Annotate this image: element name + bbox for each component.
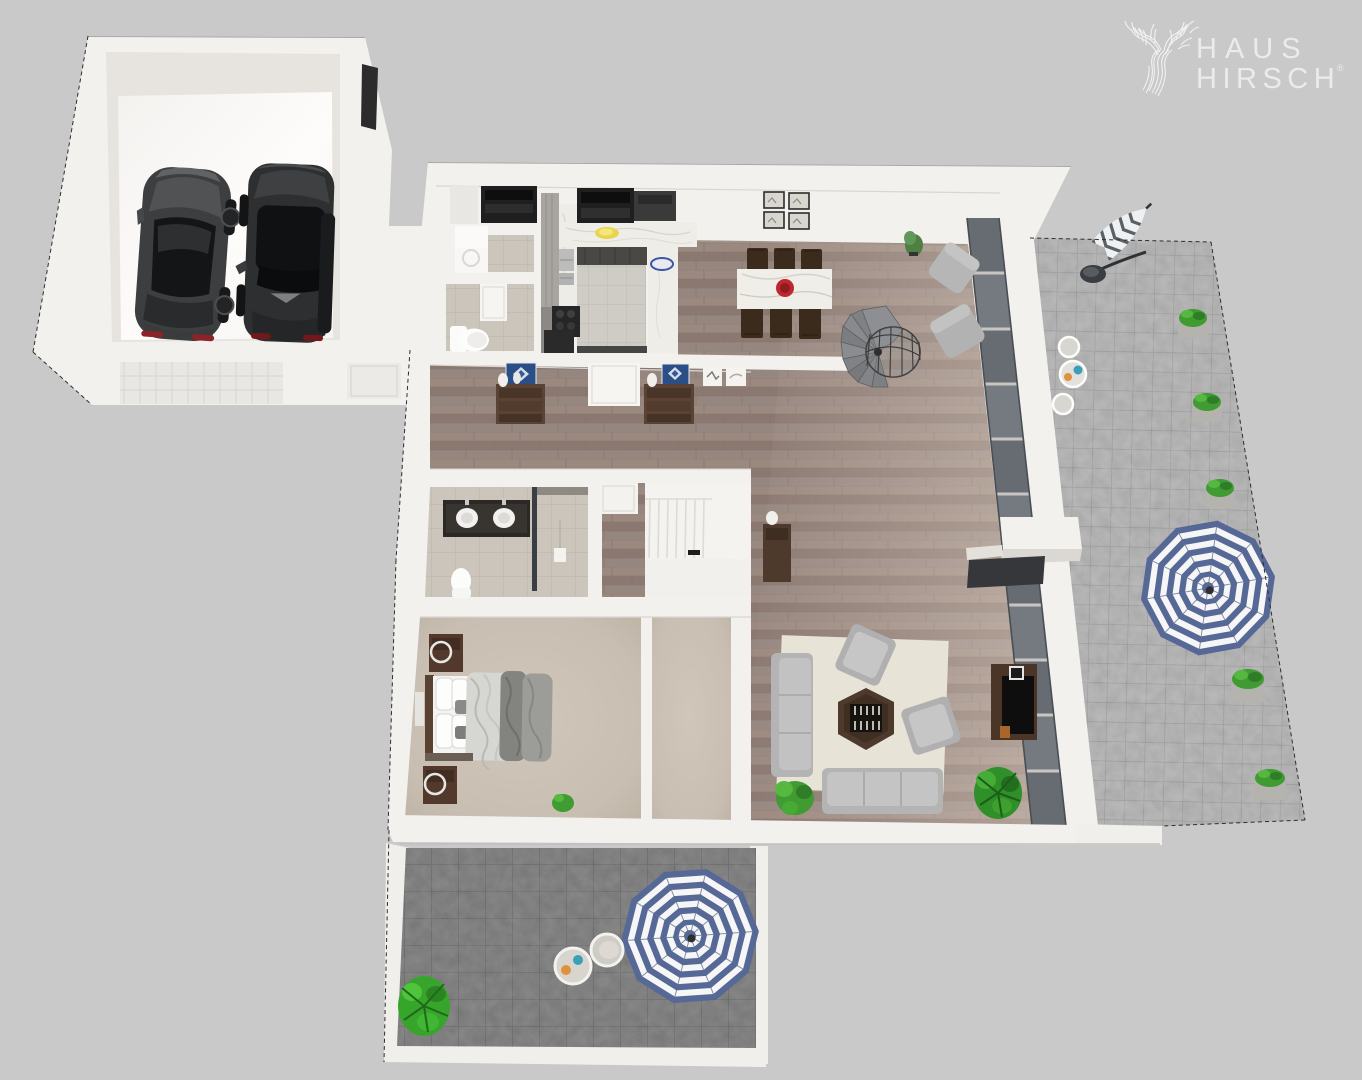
svg-text:HAUS: HAUS xyxy=(1196,33,1309,65)
svg-text:HIRSCH: HIRSCH xyxy=(1196,63,1340,95)
svg-text:®: ® xyxy=(1337,63,1344,73)
